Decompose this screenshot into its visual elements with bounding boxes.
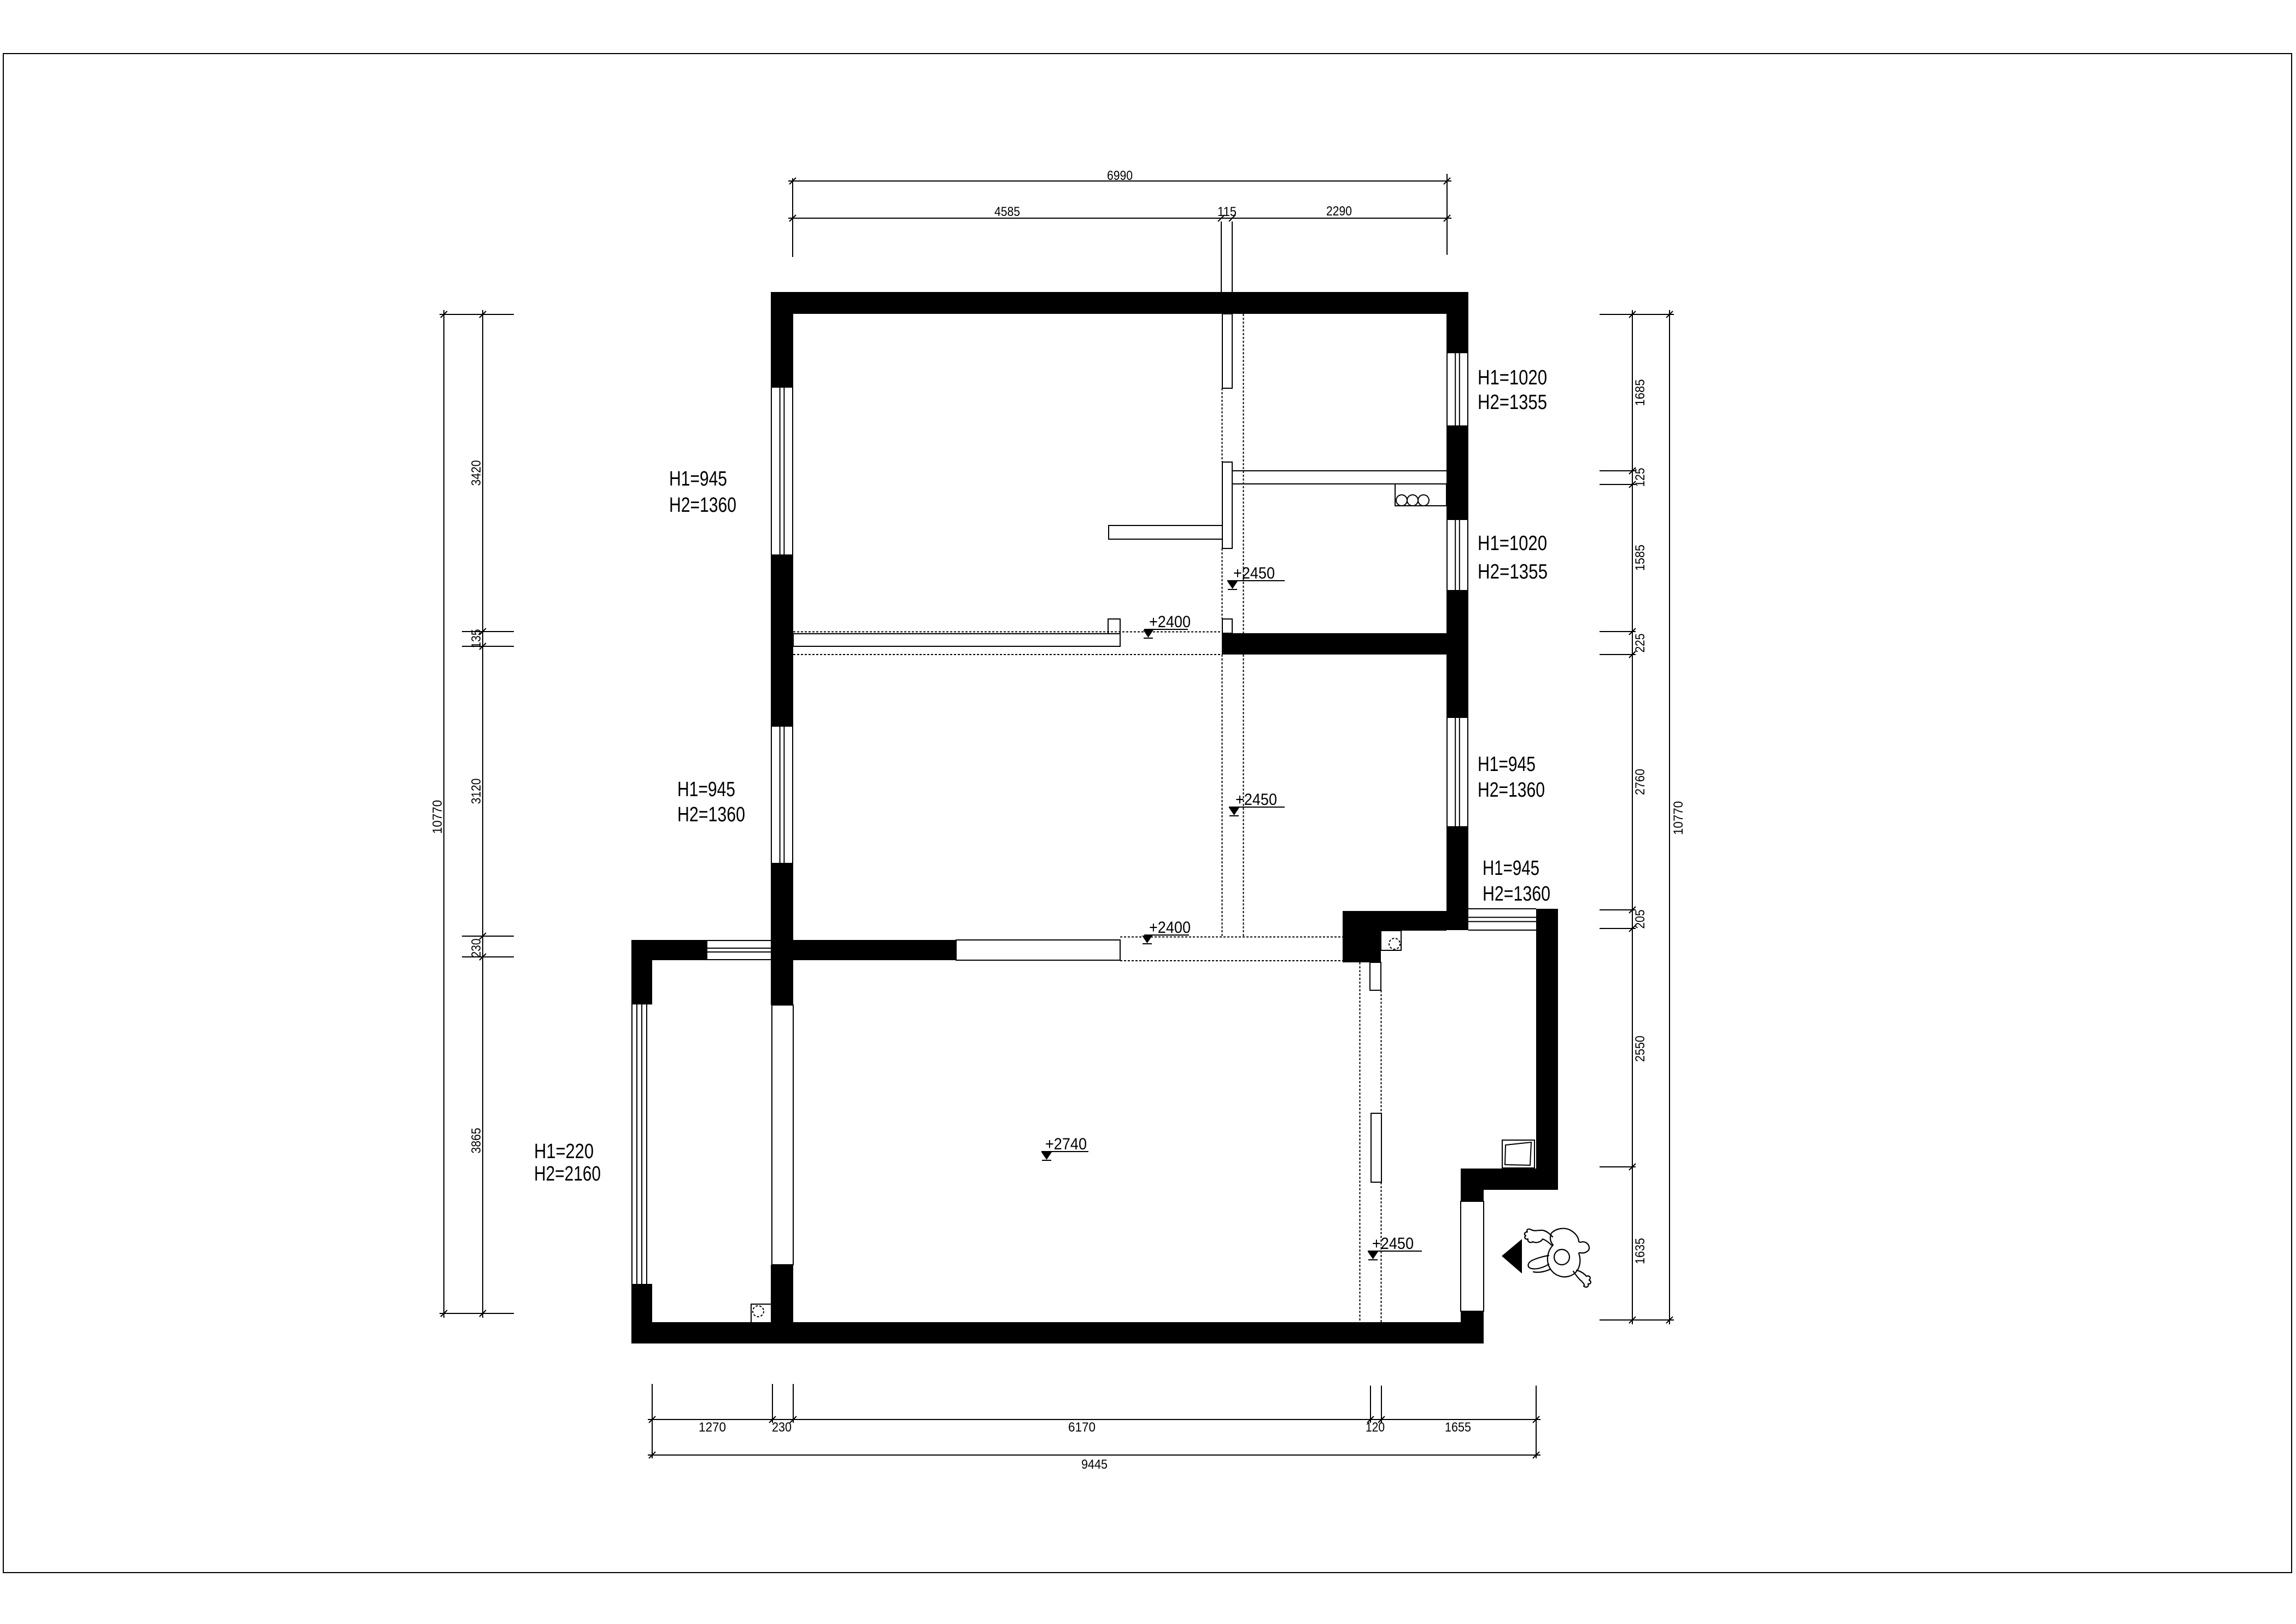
svg-text:H2=1355: H2=1355	[1478, 391, 1547, 414]
svg-text:3420: 3420	[469, 460, 484, 486]
svg-text:115: 115	[1217, 205, 1237, 219]
svg-text:+2450: +2450	[1372, 1235, 1414, 1253]
svg-text:H2=2160: H2=2160	[534, 1162, 601, 1185]
svg-text:205: 205	[1633, 910, 1648, 929]
svg-text:6170: 6170	[1068, 1420, 1096, 1435]
svg-text:225: 225	[1633, 634, 1648, 653]
svg-text:2290: 2290	[1326, 204, 1352, 219]
svg-text:9445: 9445	[1081, 1457, 1108, 1472]
svg-text:3120: 3120	[469, 779, 484, 804]
svg-text:+2450: +2450	[1235, 791, 1277, 809]
svg-text:H1=945: H1=945	[1478, 753, 1536, 776]
svg-text:1635: 1635	[1633, 1238, 1648, 1264]
svg-text:H2=1360: H2=1360	[1483, 883, 1550, 906]
svg-text:H2=1355: H2=1355	[1478, 560, 1548, 583]
svg-text:H2=1360: H2=1360	[1478, 779, 1545, 802]
svg-text:H1=1020: H1=1020	[1478, 366, 1547, 389]
svg-text:1685: 1685	[1633, 379, 1648, 406]
svg-text:H1=945: H1=945	[669, 468, 727, 490]
svg-text:+2740: +2740	[1045, 1135, 1087, 1153]
svg-text:10770: 10770	[1671, 801, 1686, 835]
svg-text:3865: 3865	[469, 1128, 484, 1154]
svg-text:2550: 2550	[1633, 1036, 1648, 1062]
svg-text:+2400: +2400	[1149, 613, 1191, 631]
svg-text:6990: 6990	[1107, 168, 1133, 183]
svg-text:H2=1360: H2=1360	[669, 494, 736, 517]
svg-text:4585: 4585	[994, 205, 1020, 219]
svg-text:+2400: +2400	[1149, 919, 1191, 937]
svg-text:H1=945: H1=945	[1483, 857, 1539, 880]
svg-text:1655: 1655	[1445, 1420, 1471, 1435]
svg-text:10770: 10770	[430, 800, 445, 834]
svg-text:230: 230	[772, 1420, 792, 1435]
svg-text:H1=1020: H1=1020	[1478, 532, 1547, 555]
svg-text:+2450: +2450	[1233, 564, 1275, 582]
svg-text:230: 230	[469, 939, 484, 958]
svg-text:2760: 2760	[1633, 769, 1648, 795]
svg-text:1270: 1270	[699, 1420, 726, 1435]
svg-text:H2=1360: H2=1360	[677, 803, 745, 826]
svg-text:H1=945: H1=945	[677, 778, 735, 801]
svg-text:H1=220: H1=220	[534, 1140, 594, 1163]
svg-text:1585: 1585	[1633, 545, 1648, 571]
